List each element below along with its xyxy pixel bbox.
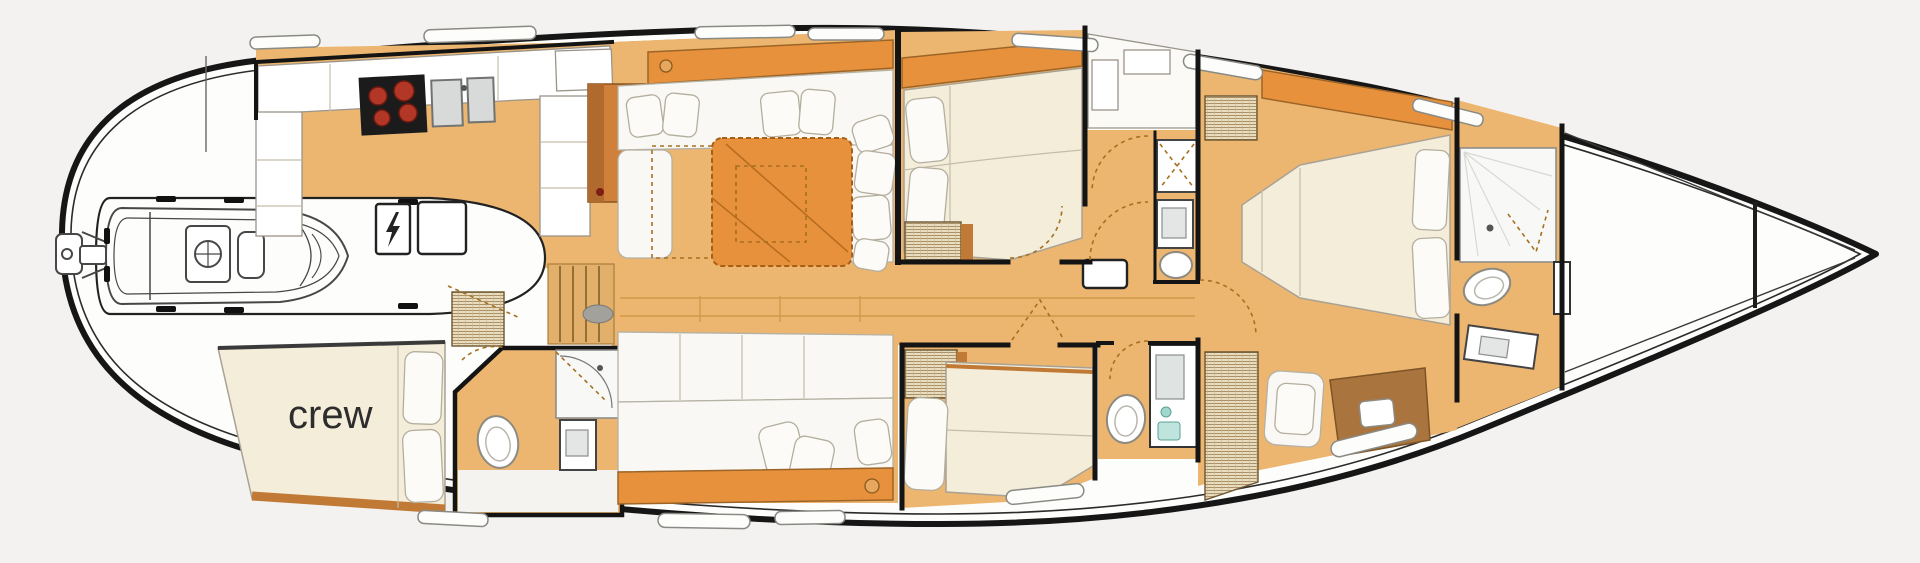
stair-handle [583, 305, 613, 323]
owner-wardrobe-top [1205, 96, 1257, 140]
burner [369, 87, 387, 105]
owner-pillow [1412, 237, 1450, 319]
utility-box [418, 202, 466, 254]
owner-vanity-seat [1263, 370, 1324, 448]
crew-shower [556, 350, 622, 418]
crew-head [455, 347, 622, 515]
salon-sofa-bottom [618, 332, 893, 504]
crew-head-storage [458, 470, 618, 512]
hull-window [808, 28, 884, 40]
guest-bed-bottom [946, 362, 1093, 498]
hull-window [250, 35, 320, 49]
hull-window [418, 510, 489, 527]
guest-bottom-pillow [904, 397, 949, 491]
guest-cabin-bottom [904, 350, 1093, 498]
sofa-base [618, 468, 893, 504]
burner [399, 104, 417, 122]
electrical-panel [376, 204, 410, 254]
guest-cabin-top [902, 40, 1082, 260]
sink-top [1157, 200, 1193, 248]
guest-top-wardrobe [905, 222, 961, 260]
owner-shower [1460, 148, 1556, 262]
owner-wardrobe-bottom [1205, 352, 1258, 500]
companionway-stairs [548, 264, 614, 344]
hull-window [695, 25, 795, 39]
crew-sink [560, 420, 596, 470]
outboard-motor [56, 234, 82, 274]
burner [394, 81, 414, 101]
hull-window [775, 510, 845, 524]
crew-cabin-label: crew [288, 393, 373, 437]
shower-head-icon [1487, 225, 1494, 232]
owner-pillow [1412, 149, 1450, 231]
vanity-bottom [1150, 345, 1197, 447]
crew-pillow [402, 429, 444, 503]
crew-pillow [403, 351, 443, 424]
deck-plan-svg: crew [0, 0, 1920, 563]
shower-head-icon [597, 365, 603, 371]
burner [374, 110, 390, 126]
shower-top [1157, 140, 1197, 192]
toilet-top [1160, 252, 1192, 278]
galley-cabinet-left [256, 112, 302, 236]
galley-counter-right [540, 96, 590, 236]
tender-seat [238, 232, 264, 278]
yacht-deck-plan: crew [0, 0, 1920, 563]
faucet-icon [461, 85, 467, 91]
salon-chaise [618, 150, 672, 258]
hull-window [658, 513, 750, 529]
cooktop [359, 74, 428, 135]
